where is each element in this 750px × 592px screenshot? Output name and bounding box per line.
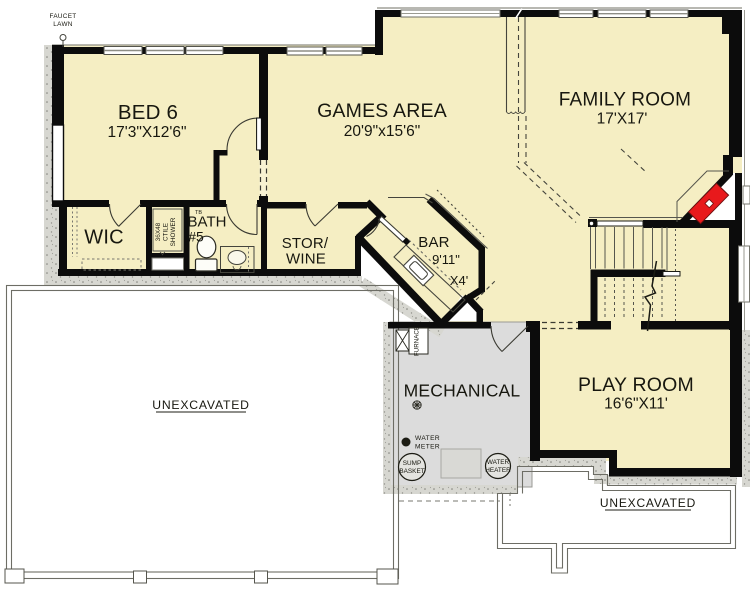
svg-text:UNEXCAVATED: UNEXCAVATED	[152, 398, 250, 412]
svg-text:FAUCET: FAUCET	[49, 13, 76, 20]
svg-text:WINE: WINE	[286, 251, 326, 268]
svg-text:METER: METER	[415, 444, 440, 451]
svg-text:17'3"X12'6": 17'3"X12'6"	[108, 124, 187, 141]
svg-text:CTILE: CTILE	[163, 223, 170, 241]
svg-text:9'11": 9'11"	[432, 252, 460, 267]
svg-text:16'6"X11': 16'6"X11'	[604, 396, 668, 413]
svg-text:PLAY ROOM: PLAY ROOM	[578, 374, 694, 396]
svg-text:SHOWER: SHOWER	[170, 217, 177, 246]
svg-text:LAWN: LAWN	[53, 21, 73, 28]
svg-text:WATER: WATER	[487, 459, 510, 466]
svg-text:36X48: 36X48	[155, 222, 162, 241]
svg-text:20'9"x15'6": 20'9"x15'6"	[344, 123, 420, 140]
svg-text:GAMES AREA: GAMES AREA	[317, 100, 447, 122]
svg-text:MECHANICAL: MECHANICAL	[404, 381, 521, 401]
svg-text:STOR/: STOR/	[282, 235, 329, 252]
svg-text:SUMP: SUMP	[403, 460, 421, 467]
svg-text:WIC: WIC	[84, 227, 123, 249]
svg-text:BAR: BAR	[418, 234, 449, 251]
svg-text:WATER: WATER	[415, 435, 440, 442]
svg-text:HEATER: HEATER	[485, 467, 511, 474]
svg-text:BED 6: BED 6	[118, 101, 178, 124]
svg-text:FURNACE: FURNACE	[414, 326, 421, 356]
svg-text:BASKET: BASKET	[399, 468, 424, 475]
svg-text:#5: #5	[188, 229, 204, 245]
svg-text:UNEXCAVATED: UNEXCAVATED	[600, 496, 696, 510]
svg-text:X4': X4'	[450, 273, 468, 288]
svg-text:17'X17': 17'X17'	[597, 111, 648, 128]
svg-text:FAMILY ROOM: FAMILY ROOM	[559, 90, 691, 111]
